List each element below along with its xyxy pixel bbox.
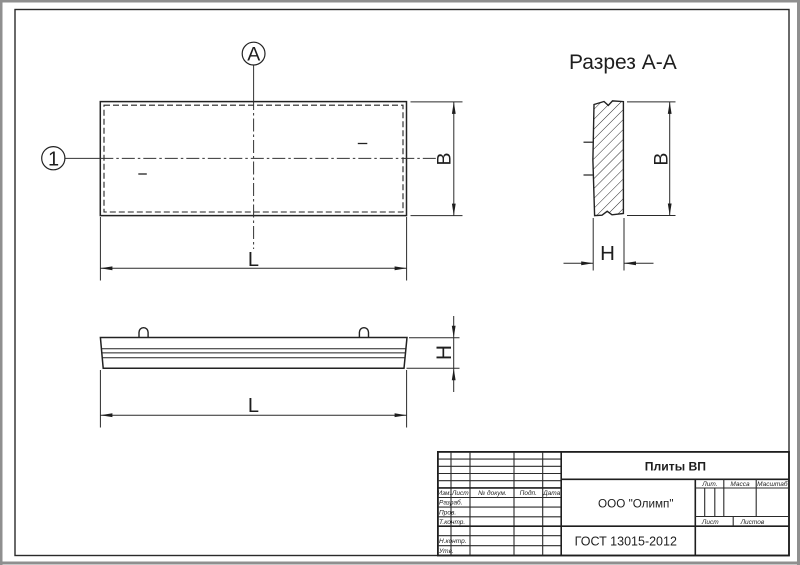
svg-text:B: B	[650, 153, 672, 166]
svg-text:L: L	[248, 249, 259, 271]
svg-text:L: L	[248, 395, 259, 417]
svg-text:А: А	[247, 44, 260, 66]
svg-text:ГОСТ 13015-2012: ГОСТ 13015-2012	[575, 534, 677, 548]
svg-text:H: H	[600, 242, 615, 265]
svg-text:Н.контр.: Н.контр.	[439, 538, 467, 545]
svg-text:Разраб.: Разраб.	[439, 499, 463, 507]
svg-text:Лист: Лист	[451, 490, 469, 497]
svg-text:1: 1	[48, 148, 59, 170]
svg-text:Подп.: Подп.	[520, 489, 537, 497]
svg-text:Дата: Дата	[542, 490, 561, 497]
svg-text:Пров.: Пров.	[439, 509, 456, 516]
svg-text:Разрез А-А: Разрез А-А	[569, 51, 677, 74]
svg-text:Т.контр.: Т.контр.	[439, 519, 465, 526]
svg-text:Лист: Лист	[701, 519, 719, 526]
svg-text:Масштаб: Масштаб	[757, 480, 788, 488]
svg-text:ООО "Олимп": ООО "Олимп"	[598, 497, 674, 510]
svg-text:№ докум.: № докум.	[478, 489, 507, 497]
svg-text:Лит.: Лит.	[701, 481, 717, 488]
svg-text:Плиты ВП: Плиты ВП	[645, 459, 706, 473]
svg-text:Изм.: Изм.	[437, 490, 451, 497]
svg-text:B: B	[433, 152, 455, 165]
svg-text:H: H	[433, 345, 456, 360]
svg-text:Масса: Масса	[730, 481, 750, 488]
svg-text:Утв.: Утв.	[438, 548, 454, 555]
svg-text:Листов: Листов	[740, 519, 765, 526]
